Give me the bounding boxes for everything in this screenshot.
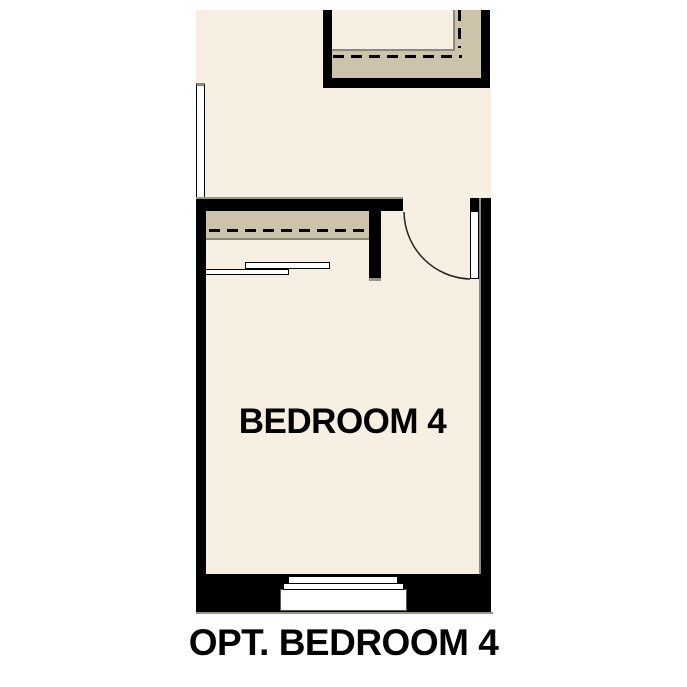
floorplan-canvas: BEDROOM 4 OPT. BEDROOM 4	[0, 0, 687, 687]
closet-shelf	[206, 211, 369, 240]
window-sill-outer	[280, 589, 407, 611]
bedroom-wall-top	[196, 199, 403, 211]
closet-sliding-door-left	[205, 269, 289, 275]
open-wall-segment	[196, 83, 205, 199]
upper-closet-wall-left	[323, 10, 332, 88]
closet-partition-wall	[369, 211, 381, 281]
hall-floor-lower	[196, 88, 491, 200]
closet-sliding-door-right	[245, 262, 330, 269]
window-sill-middle	[283, 583, 404, 590]
upper-closet-shelf-dashed-line	[333, 55, 462, 58]
room-label: BEDROOM 4	[206, 404, 479, 439]
upper-closet-wall-bottom	[323, 78, 490, 88]
upper-closet-wall-right	[481, 10, 490, 88]
window-sill-inner	[288, 576, 398, 584]
door-leaf	[470, 211, 479, 279]
upper-closet-shelf-dashed-line-vertical	[458, 10, 461, 48]
bedroom-wall-right	[479, 198, 491, 612]
closet-shelf-dashed-line	[209, 229, 366, 232]
bedroom-wall-left	[196, 199, 206, 612]
wall-bottom-edge-line	[196, 612, 493, 614]
upper-closet-inset-floor	[332, 10, 455, 51]
figure-caption: OPT. BEDROOM 4	[96, 624, 591, 661]
